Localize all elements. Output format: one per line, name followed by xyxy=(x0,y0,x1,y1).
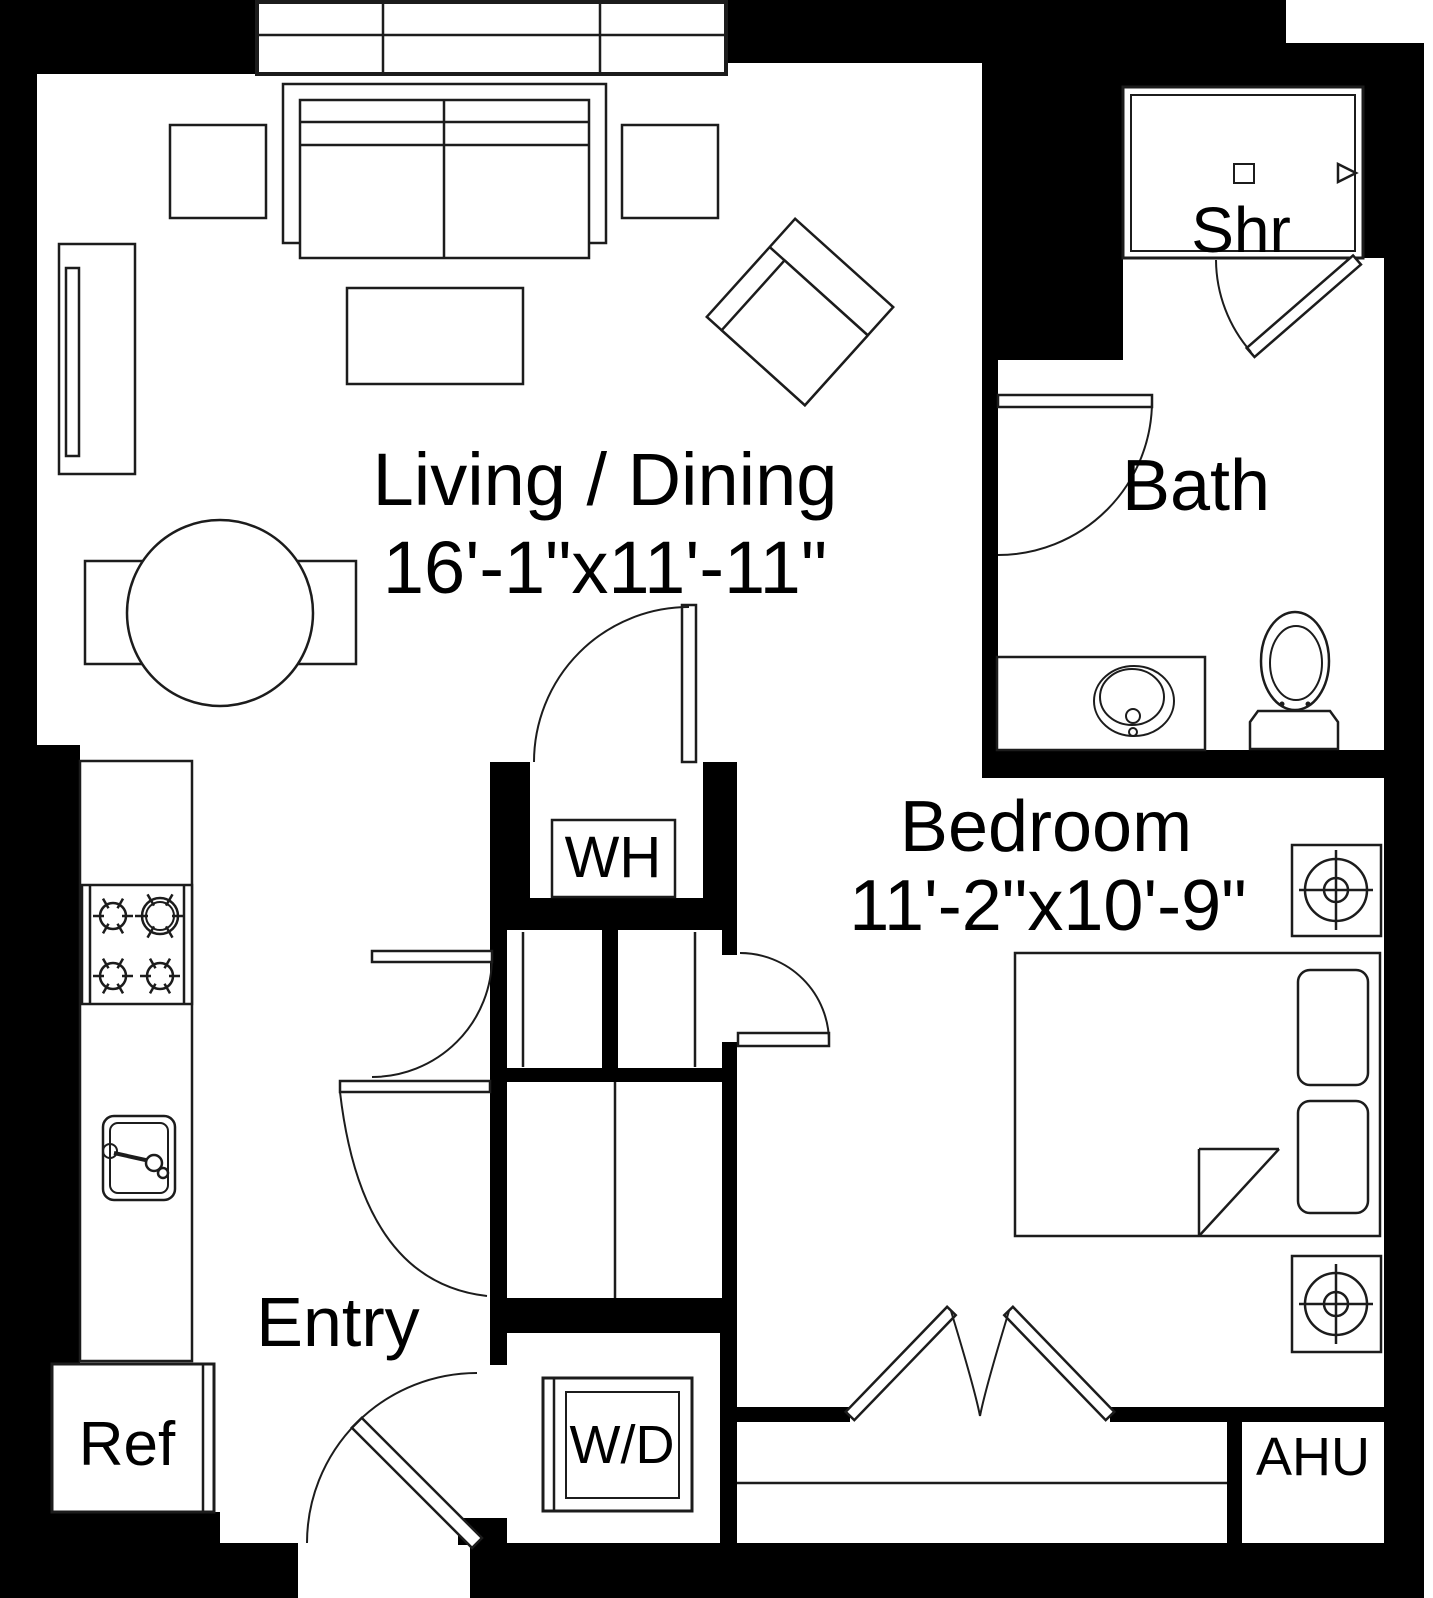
water-heater-label: WH xyxy=(565,825,662,890)
armchair xyxy=(707,219,893,405)
water-heater: WH xyxy=(552,820,675,897)
bedroom-dims: 11'-2"x10'-9" xyxy=(849,866,1246,946)
dining-table xyxy=(127,520,313,706)
refrigerator-label: Ref xyxy=(79,1410,176,1479)
dining-set xyxy=(85,520,356,706)
shower-door xyxy=(1216,255,1361,357)
media-console xyxy=(59,244,135,474)
bed xyxy=(1015,953,1380,1236)
bedroom-label: Bedroom xyxy=(900,787,1192,867)
air-handler: AHU xyxy=(1256,1427,1370,1487)
closet-doors xyxy=(340,932,829,1298)
bath-label: Bath xyxy=(1122,446,1270,526)
end-table-right xyxy=(622,125,718,218)
bath-vanity xyxy=(997,657,1205,750)
pillow xyxy=(1298,970,1368,1085)
kitchen-counter xyxy=(80,761,192,1361)
french-doors xyxy=(846,1307,1115,1420)
washer-dryer-label: W/D xyxy=(570,1415,675,1475)
entry-label: Entry xyxy=(256,1283,419,1361)
living-room-label: Living / Dining xyxy=(373,438,838,521)
coffee-table xyxy=(347,288,523,384)
toilet xyxy=(1250,612,1338,749)
refrigerator: Ref xyxy=(52,1364,214,1512)
shower-label: Shr xyxy=(1191,194,1291,266)
nightstand-bottom xyxy=(1292,1256,1381,1352)
nightstand-top xyxy=(1292,845,1381,936)
pillow xyxy=(1298,1101,1368,1213)
stove xyxy=(82,885,192,1004)
sofa xyxy=(283,84,606,258)
end-table-left xyxy=(170,125,266,218)
kitchen-sink xyxy=(103,1116,175,1200)
washer-dryer: W/D xyxy=(543,1378,692,1511)
entry-door xyxy=(307,1373,482,1548)
air-handler-label: AHU xyxy=(1256,1427,1370,1487)
wh-door xyxy=(534,605,696,762)
shower: Shr xyxy=(1123,87,1363,266)
living-room-dims: 16'-1"x11'-11" xyxy=(383,526,827,609)
top-deck-table xyxy=(257,2,726,74)
floor-plan-svg: Ref WH W/D xyxy=(0,0,1433,1598)
floor-plan: Ref WH W/D xyxy=(0,0,1433,1598)
